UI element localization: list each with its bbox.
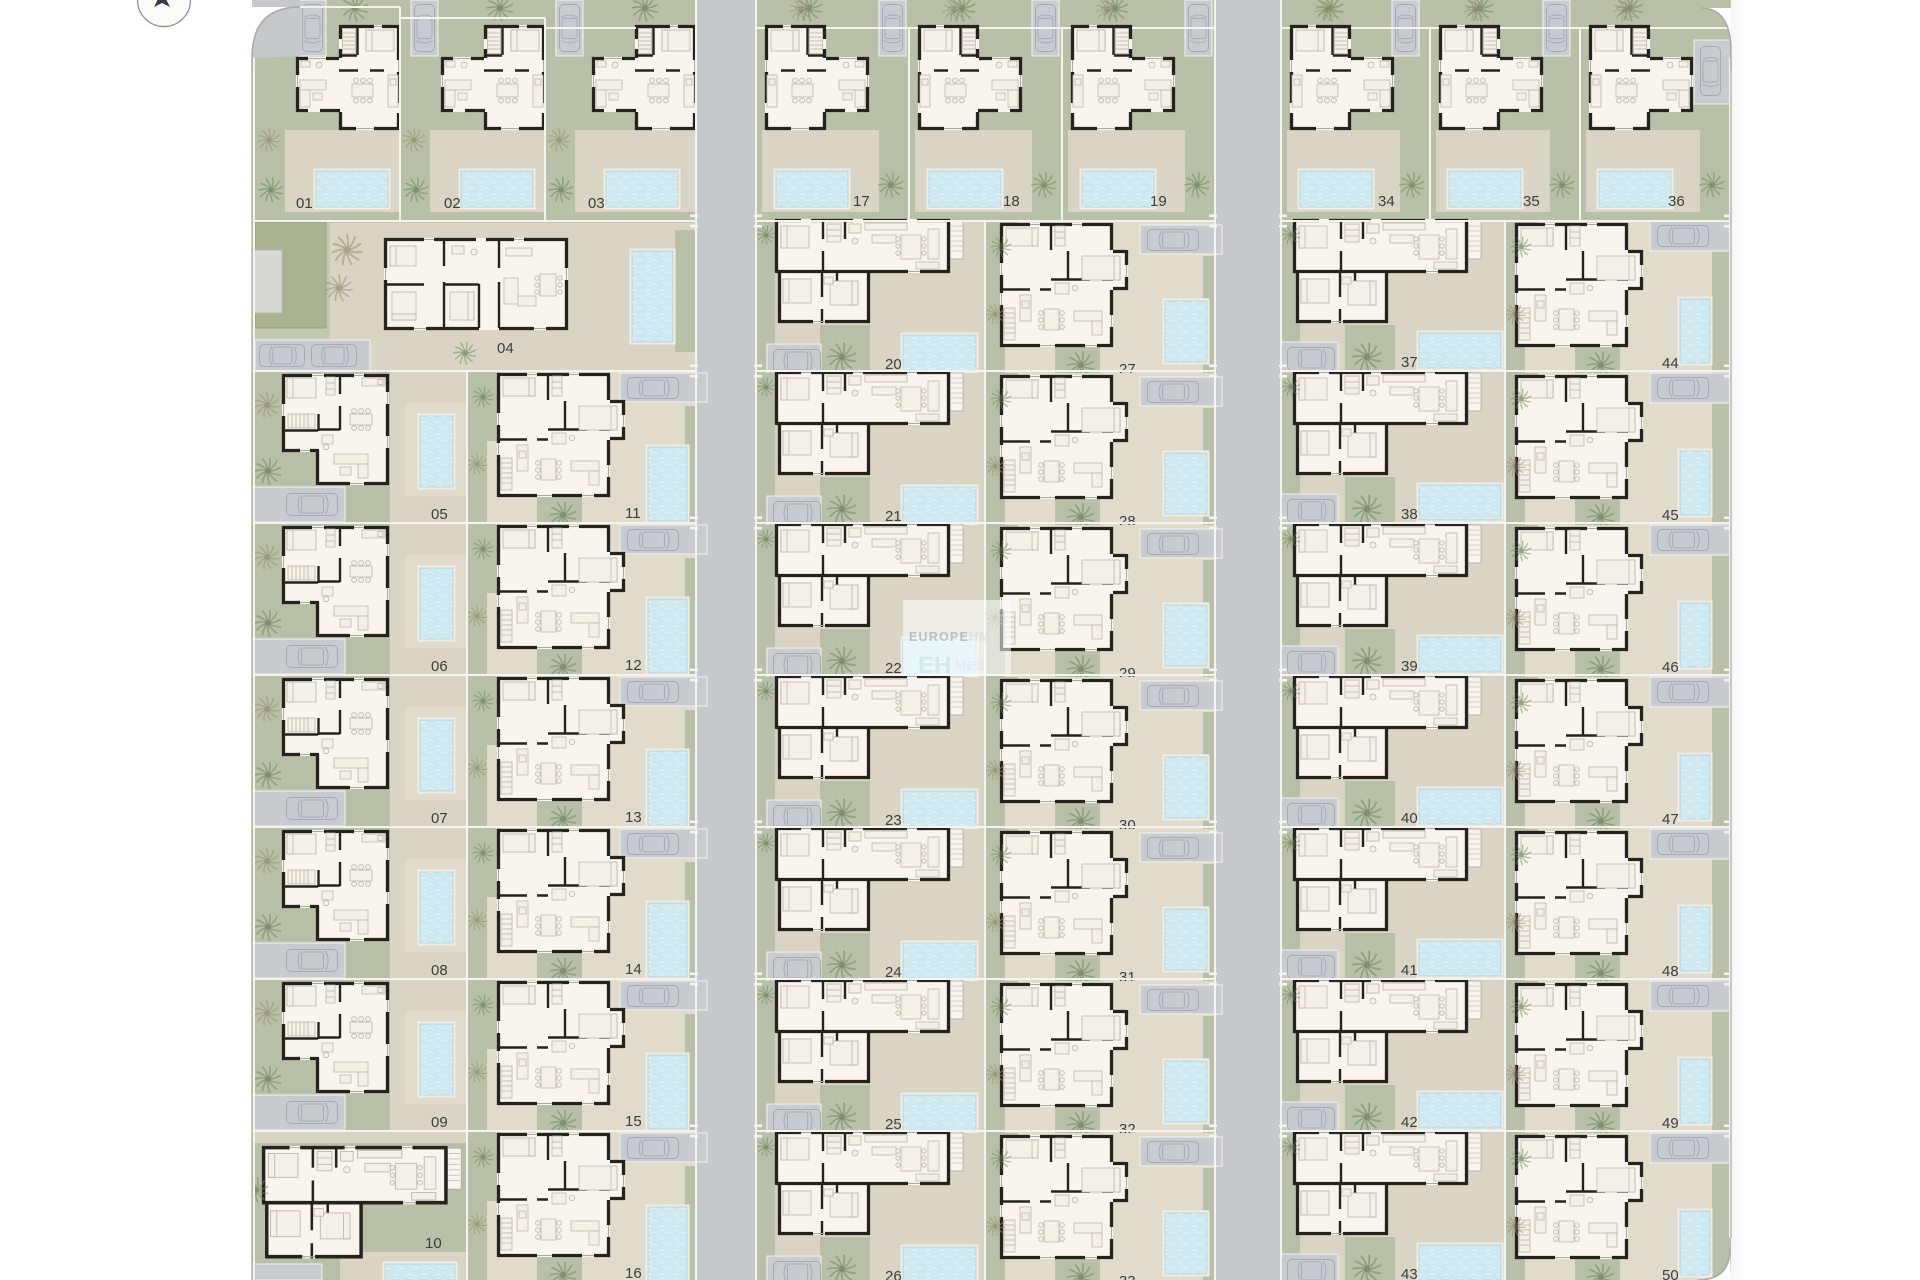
svg-text:07: 07: [431, 810, 448, 827]
svg-text:43: 43: [1401, 1266, 1418, 1280]
svg-text:40: 40: [1401, 810, 1418, 827]
svg-text:37: 37: [1401, 354, 1418, 371]
svg-text:16: 16: [625, 1265, 642, 1280]
svg-text:01: 01: [296, 195, 313, 212]
svg-text:36: 36: [1668, 193, 1685, 210]
svg-text:19: 19: [1150, 193, 1167, 210]
svg-text:10: 10: [425, 1235, 442, 1252]
svg-text:47: 47: [1662, 811, 1679, 828]
svg-text:18: 18: [1003, 193, 1020, 210]
svg-text:42: 42: [1401, 1114, 1418, 1131]
svg-text:08: 08: [431, 962, 448, 979]
svg-text:14: 14: [625, 961, 642, 978]
svg-text:15: 15: [625, 1113, 642, 1130]
svg-text:49: 49: [1662, 1115, 1679, 1132]
svg-text:02: 02: [444, 195, 461, 212]
svg-text:33: 33: [1119, 1273, 1136, 1280]
svg-text:13: 13: [625, 809, 642, 826]
svg-text:11: 11: [625, 505, 641, 522]
svg-text:05: 05: [431, 506, 448, 523]
svg-text:38: 38: [1401, 506, 1418, 523]
svg-text:46: 46: [1662, 659, 1679, 676]
svg-text:EH: EH: [918, 652, 951, 679]
svg-text:35: 35: [1523, 193, 1540, 210]
svg-text:26: 26: [885, 1268, 902, 1280]
svg-text:48: 48: [1662, 963, 1679, 980]
svg-text:09: 09: [431, 1114, 448, 1131]
svg-text:41: 41: [1401, 962, 1418, 979]
svg-text:HM: HM: [969, 630, 991, 644]
svg-text:MES: MES: [955, 659, 986, 673]
svg-text:12: 12: [625, 657, 642, 674]
svg-text:44: 44: [1662, 355, 1679, 372]
svg-text:45: 45: [1662, 507, 1679, 524]
svg-text:06: 06: [431, 658, 448, 675]
svg-text:39: 39: [1401, 658, 1418, 675]
svg-text:34: 34: [1378, 193, 1395, 210]
svg-text:03: 03: [588, 195, 605, 212]
svg-text:50: 50: [1662, 1267, 1679, 1280]
svg-text:17: 17: [853, 193, 870, 210]
svg-text:EUROPE: EUROPE: [909, 630, 969, 644]
svg-text:04: 04: [497, 340, 514, 357]
